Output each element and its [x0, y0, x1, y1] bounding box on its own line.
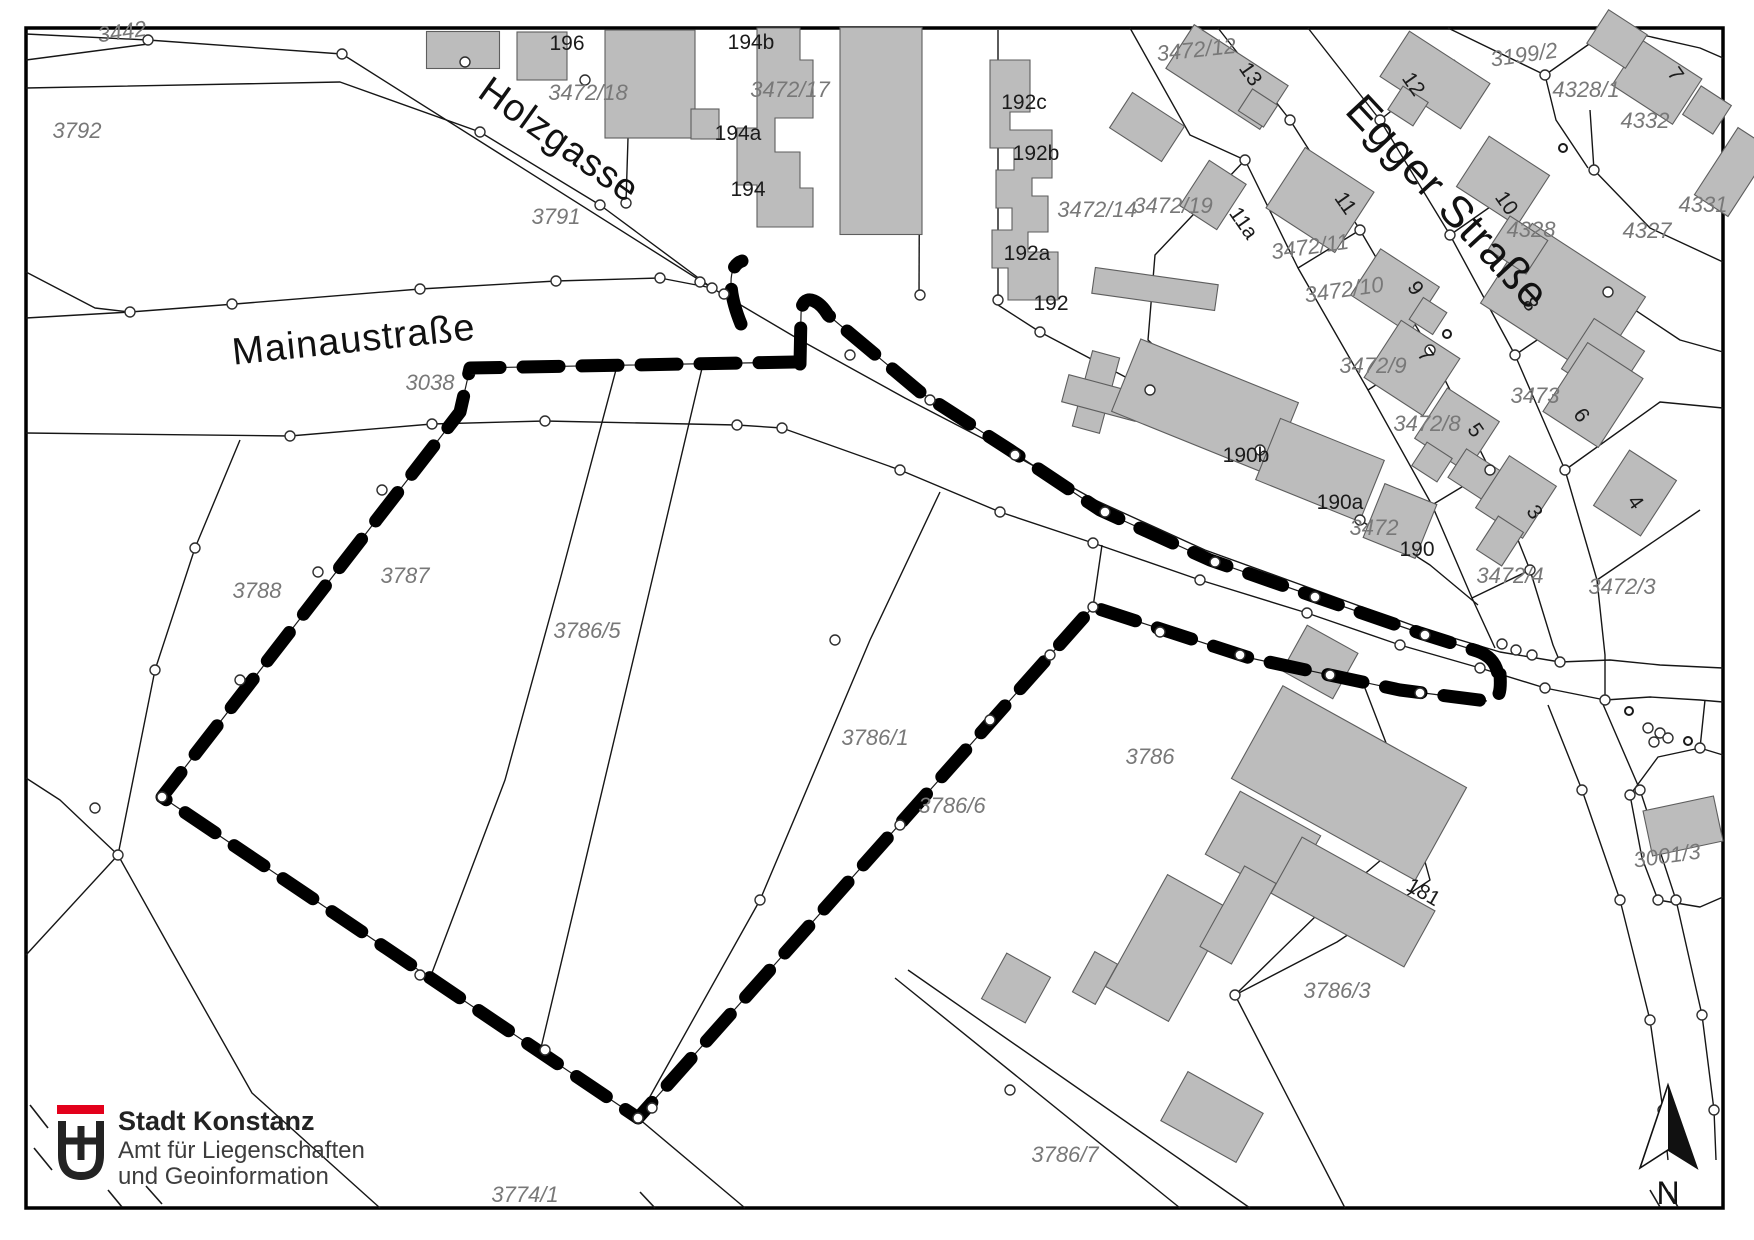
parcel-label-3472-14: 3472/14 — [1057, 197, 1137, 222]
vertex-node — [732, 420, 742, 430]
vertex-node — [707, 283, 717, 293]
vertex-node — [1230, 990, 1240, 1000]
parcel-label-3786-5: 3786/5 — [553, 618, 621, 643]
house-number-190b: 190b — [1223, 444, 1270, 467]
parcel-label-3472-18: 3472/18 — [548, 80, 628, 105]
parcel-label-3786-6: 3786/6 — [918, 793, 986, 818]
vertex-node — [1625, 790, 1635, 800]
parcel-label-3792: 3792 — [53, 118, 102, 143]
vertex-node — [1235, 650, 1245, 660]
parcel-label-3472-9: 3472/9 — [1339, 353, 1406, 378]
house-number-196: 196 — [549, 32, 584, 55]
parcel-label-3472-8: 3472/8 — [1393, 411, 1461, 436]
vertex-node — [1325, 670, 1335, 680]
vertex-node — [1510, 350, 1520, 360]
vertex-node — [1100, 507, 1110, 517]
vertex-node — [1355, 225, 1365, 235]
house-number-192c: 192c — [1001, 91, 1047, 114]
vertex-node — [227, 299, 237, 309]
vertex-node — [1671, 895, 1681, 905]
vertex-node — [90, 803, 100, 813]
vertex-node — [1010, 450, 1020, 460]
parcel-label-3472-4: 3472/4 — [1476, 563, 1543, 588]
vertex-node — [1540, 683, 1550, 693]
vertex-node — [1555, 657, 1565, 667]
parcel-label-3472-3: 3472/3 — [1588, 574, 1656, 599]
vertex-node — [1045, 650, 1055, 660]
vertex-node — [1497, 639, 1507, 649]
house-number-192a: 192a — [1004, 242, 1051, 265]
parcel-label-3786-7: 3786/7 — [1031, 1142, 1099, 1167]
vertex-node — [1415, 688, 1425, 698]
vertex-node — [377, 485, 387, 495]
vertex-node — [1527, 650, 1537, 660]
vertex-node — [113, 850, 123, 860]
vertex-node — [1145, 385, 1155, 395]
vertex-node — [719, 289, 729, 299]
vertex-node — [995, 507, 1005, 517]
vertex-node — [415, 284, 425, 294]
parcel-label-3787: 3787 — [381, 563, 431, 588]
vertex-node — [427, 419, 437, 429]
vertex-node — [895, 465, 905, 475]
vertex-node — [1195, 575, 1205, 585]
house-number-190a: 190a — [1317, 491, 1364, 514]
parcel-label-3786-3: 3786/3 — [1303, 978, 1371, 1003]
vertex-node — [1240, 155, 1250, 165]
vertex-node — [1302, 608, 1312, 618]
vertex-node — [655, 273, 665, 283]
vertex-node — [755, 895, 765, 905]
parcel-label-3786-1: 3786/1 — [841, 725, 908, 750]
vertex-node — [1603, 287, 1613, 297]
vertex-node — [150, 665, 160, 675]
vertex-node — [540, 1045, 550, 1055]
house-number-190: 190 — [1399, 538, 1434, 561]
parcel-label-3472-19: 3472/19 — [1133, 193, 1213, 218]
vertex-node — [125, 307, 135, 317]
vertex-node — [1649, 737, 1659, 747]
vertex-node — [1485, 465, 1495, 475]
vertex-node — [633, 1113, 643, 1123]
house-number-192: 192 — [1033, 292, 1068, 315]
vertex-node — [285, 431, 295, 441]
vertex-node — [777, 423, 787, 433]
vertex-node — [985, 715, 995, 725]
vertex-node — [157, 792, 167, 802]
vertex-node — [1210, 557, 1220, 567]
vertex-node — [845, 350, 855, 360]
building — [840, 28, 922, 235]
vertex-node — [1511, 645, 1521, 655]
vertex-node — [540, 416, 550, 426]
vertex-node — [475, 127, 485, 137]
vertex-node — [1709, 1105, 1719, 1115]
vertex-node — [1310, 592, 1320, 602]
vertex-node — [925, 395, 935, 405]
vertex-node — [647, 1103, 657, 1113]
vertex-node — [1420, 630, 1430, 640]
vertex-node — [1577, 785, 1587, 795]
vertex-node — [1035, 327, 1045, 337]
map-page: 344237923472/183472/17379130383472/14347… — [0, 0, 1754, 1240]
vertex-node — [1285, 115, 1295, 125]
house-number-194a: 194a — [715, 122, 762, 145]
logo-title: Stadt Konstanz — [118, 1106, 315, 1136]
vertex-node — [1088, 602, 1098, 612]
vertex-node — [313, 567, 323, 577]
parcel-label-4332: 4332 — [1621, 108, 1670, 133]
logo-subtitle-1: Amt für Liegenschaften — [118, 1137, 365, 1164]
vertex-node — [415, 970, 425, 980]
vertex-node — [993, 295, 1003, 305]
vertex-node — [1600, 695, 1610, 705]
vertex-node — [1395, 640, 1405, 650]
parcel-label-4327: 4327 — [1623, 218, 1673, 243]
vertex-node — [190, 543, 200, 553]
vertex-node — [915, 290, 925, 300]
logo-subtitle-2: und Geoinformation — [118, 1163, 329, 1190]
house-number-194b: 194b — [728, 31, 775, 54]
vertex-node — [830, 635, 840, 645]
vertex-node — [1697, 1010, 1707, 1020]
parcel-label-3038: 3038 — [406, 370, 456, 395]
parcel-label-3791: 3791 — [532, 204, 581, 229]
vertex-node — [1589, 165, 1599, 175]
vertex-node — [895, 820, 905, 830]
vertex-node — [1695, 743, 1705, 753]
vertex-node — [1560, 465, 1570, 475]
parcel-label-3472-17: 3472/17 — [750, 77, 830, 102]
vertex-node — [1475, 663, 1485, 673]
parcel-label-3774-1: 3774/1 — [491, 1182, 558, 1207]
parcel-label-3786: 3786 — [1126, 744, 1176, 769]
house-number-192b: 192b — [1013, 142, 1060, 165]
vertex-node — [1635, 785, 1645, 795]
vertex-node — [1615, 895, 1625, 905]
parcel-label-3472: 3472 — [1350, 515, 1399, 540]
vertex-node — [1540, 70, 1550, 80]
vertex-node — [1155, 627, 1165, 637]
vertex-node — [695, 277, 705, 287]
vertex-node — [337, 49, 347, 59]
vertex-node — [1663, 733, 1673, 743]
vertex-node — [235, 675, 245, 685]
vertex-node — [551, 276, 561, 286]
logo-red-bar — [57, 1105, 104, 1114]
vertex-node — [1645, 1015, 1655, 1025]
vertex-node — [460, 57, 470, 67]
vertex-node — [1005, 1085, 1015, 1095]
vertex-node — [1653, 895, 1663, 905]
parcel-label-3788: 3788 — [233, 578, 283, 603]
parcel-label-3473: 3473 — [1511, 383, 1561, 408]
vertex-node — [595, 200, 605, 210]
house-number-194: 194 — [730, 178, 765, 201]
parcel-label-4331: 4331 — [1679, 192, 1728, 217]
cadastral-map[interactable]: 344237923472/183472/17379130383472/14347… — [0, 0, 1754, 1240]
parcel-label-4328-1: 4328/1 — [1552, 77, 1619, 102]
vertex-node — [1088, 538, 1098, 548]
vertex-node — [1643, 723, 1653, 733]
